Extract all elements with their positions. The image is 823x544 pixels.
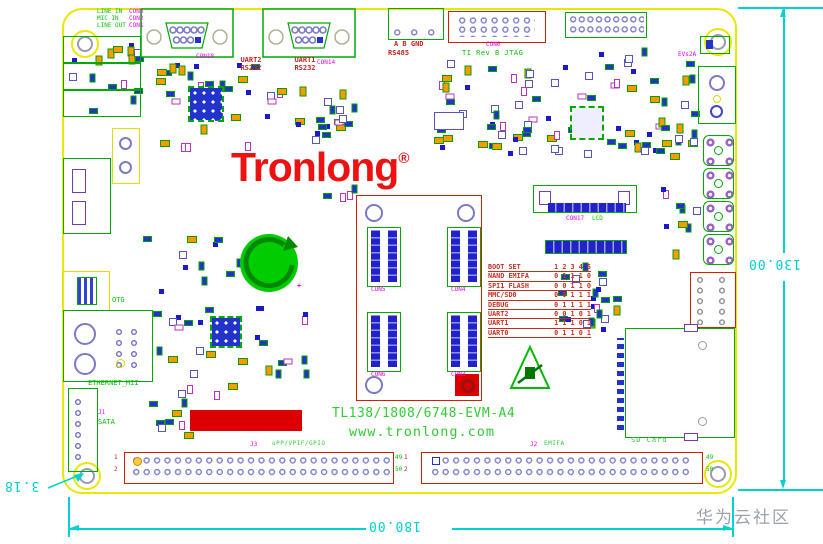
dim-arrow-down — [780, 480, 786, 489]
component — [627, 85, 637, 92]
component — [442, 75, 452, 82]
component — [184, 320, 193, 326]
b2b-connector-con5 — [367, 227, 401, 287]
component — [302, 355, 308, 364]
sd-card-slot — [625, 328, 735, 438]
component — [647, 132, 652, 137]
component — [201, 276, 207, 285]
esd-warning-triangle — [508, 344, 552, 392]
component — [642, 47, 648, 56]
db9-uart1-connector — [262, 8, 356, 58]
user-key-4 — [703, 234, 734, 265]
component — [267, 98, 276, 104]
component — [238, 358, 248, 365]
board-name: TL138/1808/6748-EVM-A4 — [332, 406, 512, 421]
ethernet-phy-ic — [212, 318, 240, 346]
battery-plus-mark: + — [297, 283, 301, 291]
con4-refdes: CON4 — [451, 287, 465, 294]
emifa-label: EMIFA — [544, 441, 565, 448]
sata-connector — [68, 388, 98, 472]
upp-pin2-number: 2 — [114, 467, 118, 474]
boot-row: DEBUG0 1 1 1 1 — [488, 301, 591, 310]
component — [157, 347, 163, 356]
component — [143, 236, 152, 242]
sd-card-label: SD Card — [631, 437, 668, 445]
component — [187, 385, 193, 394]
pcb-layout-canvas: LINE IN MIC IN LINE OUT CON3 CON2 CON1 C… — [0, 0, 823, 544]
component — [266, 366, 273, 376]
boot-row: SPI1 FLASH0 0 1 1 0 — [488, 282, 591, 291]
registered-mark: ® — [398, 150, 408, 167]
component — [153, 311, 162, 317]
dim-height-text: 130.00 — [748, 256, 801, 271]
emifa-header — [421, 452, 703, 484]
component — [187, 236, 197, 243]
component — [226, 271, 235, 277]
right-edge-connector — [690, 272, 736, 328]
emifa-refdes: J2 — [530, 442, 537, 449]
upp-pin49-number: 49 — [395, 455, 402, 462]
component — [302, 316, 308, 325]
crystal — [434, 112, 464, 130]
ethernet-label: ETHERNET_MII — [88, 380, 139, 388]
jtag-refdes: CON6 — [486, 42, 500, 49]
component — [526, 70, 534, 78]
component — [277, 88, 287, 95]
component — [447, 60, 455, 68]
sd-slot-pins — [617, 338, 624, 430]
component — [670, 153, 680, 160]
emifa-pin50-number: 50 — [706, 467, 713, 474]
dim-hole-text: 3.18 — [4, 478, 39, 493]
component — [238, 76, 248, 83]
component — [662, 140, 672, 147]
component — [693, 207, 701, 215]
ethernet-jack — [63, 310, 153, 382]
component — [625, 55, 633, 63]
component — [255, 335, 260, 340]
component — [440, 145, 445, 150]
component — [303, 370, 309, 379]
component — [675, 135, 683, 143]
component — [179, 66, 186, 76]
component — [446, 99, 455, 105]
component — [259, 306, 264, 311]
rs485-pin-labels: A B GND — [394, 41, 424, 49]
component — [179, 421, 185, 430]
component — [316, 117, 325, 123]
boot-row: MMC/SD00 0 1 1 1 — [488, 291, 591, 300]
component — [614, 79, 620, 88]
component — [340, 193, 346, 202]
power-jack — [698, 66, 736, 124]
jtag-header — [448, 11, 546, 43]
uart2-label: UART2RS232 — [230, 57, 272, 72]
component — [206, 351, 216, 358]
component — [682, 76, 689, 86]
upp-pin50-number: 50 — [395, 467, 402, 474]
component — [601, 297, 610, 303]
component — [487, 124, 496, 130]
component — [185, 143, 191, 152]
audio-jack-mic-in — [63, 63, 141, 90]
component — [563, 65, 568, 70]
user-key-1 — [703, 135, 734, 166]
component — [198, 261, 204, 270]
component — [259, 340, 268, 346]
component — [508, 151, 513, 156]
sata-label: SATA — [98, 419, 115, 427]
component — [551, 145, 559, 153]
component — [546, 116, 551, 121]
component — [156, 78, 166, 85]
dim-line-height-upper — [783, 9, 785, 253]
component — [599, 278, 607, 286]
component — [587, 95, 596, 101]
dim-arrow-left — [70, 525, 79, 531]
top-right-header — [565, 12, 647, 38]
component — [166, 91, 175, 97]
silk-filled-block — [190, 410, 302, 431]
component — [488, 66, 497, 72]
component — [323, 193, 332, 199]
component — [498, 131, 506, 139]
audio-jack-line-in — [63, 36, 141, 63]
lcd-refdes: CON17 — [566, 216, 584, 223]
component — [686, 61, 695, 67]
tronlong-logo: Tronlong® — [231, 144, 408, 191]
component — [601, 327, 606, 332]
core-board-socket: CON5 CON4 CON6 CON3 — [356, 195, 482, 401]
component — [196, 347, 204, 355]
b2b-connector-con4 — [447, 227, 481, 287]
component — [201, 124, 208, 134]
component — [340, 89, 347, 99]
component — [351, 103, 357, 112]
component — [597, 309, 603, 318]
component — [519, 147, 527, 155]
component — [513, 137, 518, 142]
watermark: 华为云社区 — [696, 503, 791, 528]
component — [656, 148, 665, 154]
emifa-pin2-number: 2 — [404, 467, 408, 474]
component — [160, 140, 170, 147]
component — [662, 98, 668, 107]
lcd-label: LCD — [592, 216, 603, 223]
component — [478, 141, 488, 148]
sata-refdes: J1 — [98, 410, 105, 417]
component — [170, 63, 177, 73]
con1-refdes: CON1 — [129, 23, 143, 30]
component — [515, 101, 523, 109]
line-out-label: LINE OUT — [97, 23, 126, 30]
component — [578, 94, 587, 100]
boot-row: UART11 1 1 0 1 — [488, 319, 591, 328]
component — [599, 52, 604, 57]
component — [598, 271, 607, 277]
dim-line-width-right — [452, 528, 732, 530]
emifa-pin49-number: 49 — [706, 455, 713, 462]
user-key-2 — [703, 168, 734, 199]
con5-refdes: CON5 — [371, 287, 385, 294]
component — [296, 122, 301, 127]
component — [174, 324, 183, 330]
usb-otg-connector — [62, 271, 110, 311]
component — [205, 307, 214, 313]
component — [172, 410, 182, 417]
component — [300, 87, 307, 97]
component — [275, 370, 281, 379]
component — [511, 74, 517, 83]
power-ic — [572, 108, 602, 138]
component — [149, 401, 158, 407]
component — [214, 237, 223, 243]
component — [523, 127, 532, 133]
dim-ext-line-left — [68, 497, 70, 537]
component — [613, 296, 622, 302]
website: www.tronlong.com — [342, 424, 502, 440]
component — [443, 83, 450, 93]
component — [339, 115, 347, 123]
component — [465, 85, 470, 90]
boot-row: UART20 0 1 0 1 — [488, 310, 591, 319]
component — [158, 424, 166, 432]
component — [190, 370, 198, 378]
component — [265, 114, 270, 119]
component — [246, 90, 251, 95]
mounting-hole-bottom-right — [704, 460, 732, 488]
component — [532, 96, 541, 102]
user-key-3 — [703, 201, 734, 232]
component — [172, 98, 181, 104]
component — [157, 69, 167, 76]
component — [228, 383, 238, 390]
component — [184, 432, 194, 439]
emifa-pin1-number: 1 — [404, 455, 408, 462]
upp-label: uPP/VPIF/GPIO — [272, 441, 325, 448]
component — [584, 150, 592, 158]
audio-jack-line-out — [63, 90, 141, 117]
boot-set-table: BOOT SET1 2 3 4 5 NAND EMIFA0 1 1 1 0SPI… — [488, 263, 591, 338]
top-right-connector — [700, 36, 730, 54]
component — [661, 187, 666, 192]
upp-refdes: J3 — [250, 442, 257, 449]
usb-host-connector — [63, 158, 111, 234]
component — [181, 398, 187, 407]
component — [492, 143, 502, 150]
component — [554, 131, 560, 140]
component — [283, 359, 292, 365]
component — [650, 78, 659, 84]
dim-width-text: 180.00 — [368, 518, 421, 533]
boot-table-rows: NAND EMIFA0 1 1 1 0SPI1 FLASH0 0 1 1 0MM… — [488, 272, 591, 338]
component — [318, 124, 327, 130]
dim-line-height-lower — [783, 281, 785, 483]
component — [194, 64, 199, 69]
component — [214, 391, 220, 400]
rs485-terminal — [388, 8, 444, 40]
component — [231, 114, 241, 121]
lcd-fpc-pins — [548, 203, 626, 212]
component — [650, 96, 660, 103]
fpc-connector-2 — [545, 240, 627, 254]
component — [187, 71, 193, 80]
component — [605, 64, 614, 70]
component — [303, 312, 308, 317]
component — [159, 289, 164, 294]
component — [673, 249, 680, 259]
component — [661, 125, 670, 131]
b2b-connector-con6 — [367, 312, 401, 372]
jtag-label: TI Rev B JTAG — [462, 50, 523, 58]
dim-line-width-left — [70, 528, 366, 530]
component — [690, 74, 696, 83]
component — [329, 105, 335, 114]
coin-battery — [238, 232, 300, 294]
component — [443, 135, 453, 142]
component — [585, 72, 593, 80]
component — [493, 110, 499, 119]
db9-uart2-connector — [140, 8, 234, 58]
component — [616, 126, 621, 131]
component — [614, 306, 621, 316]
component — [676, 203, 685, 209]
component — [336, 106, 344, 114]
dim-ext-line-bottom-right — [738, 489, 823, 491]
otg-label: OTG — [112, 297, 125, 305]
component — [315, 131, 320, 136]
left-aux-connector — [112, 128, 140, 184]
b2b-connector-con3 — [447, 312, 481, 372]
component — [596, 287, 601, 292]
component — [681, 101, 689, 109]
component — [631, 69, 636, 74]
upp-pin1-number: 1 — [114, 455, 118, 462]
dim-arrow-up — [780, 8, 786, 17]
component — [641, 147, 649, 155]
component — [168, 356, 178, 363]
component — [678, 221, 688, 228]
component — [446, 94, 455, 100]
con3-refdes: CON3 — [451, 372, 465, 379]
con6-refdes: CON6 — [371, 372, 385, 379]
boot-table-header: BOOT SET1 2 3 4 5 — [488, 263, 591, 272]
component — [198, 320, 203, 325]
component — [179, 251, 187, 259]
component — [618, 143, 627, 149]
audio-codec-ic — [190, 88, 222, 120]
uart1-label: UART1RS232 — [284, 57, 326, 72]
component — [205, 81, 214, 87]
component — [178, 390, 186, 398]
component — [607, 139, 616, 145]
hole-dim-leader — [44, 464, 90, 492]
component — [322, 132, 331, 138]
component — [625, 130, 635, 137]
component — [224, 86, 233, 92]
upp-header — [124, 452, 394, 484]
boot-row: NAND EMIFA0 1 1 1 0 — [488, 272, 591, 281]
board-rev-label: EVs2A — [678, 52, 696, 59]
component — [677, 123, 684, 133]
component — [551, 79, 559, 87]
rs485-label: RS485 — [388, 50, 409, 58]
component — [521, 87, 527, 96]
component — [690, 138, 698, 146]
con18-refdes: CON18 — [196, 54, 214, 61]
component — [664, 224, 669, 229]
boot-row: UART00 1 1 0 1 — [488, 329, 591, 338]
component — [183, 265, 188, 270]
component — [464, 65, 471, 75]
